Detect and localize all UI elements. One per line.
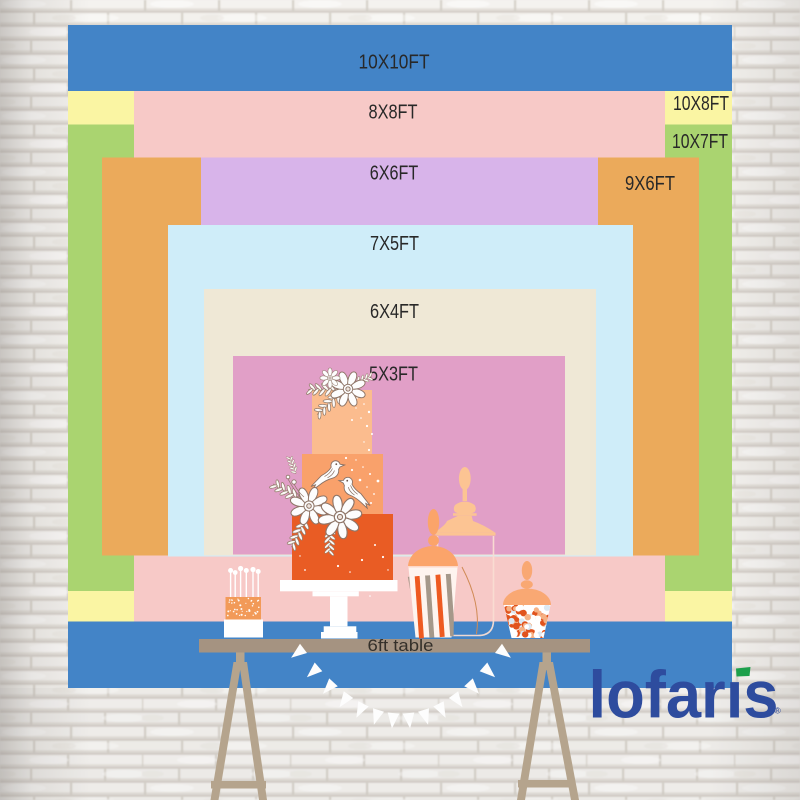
svg-text:7X5FT: 7X5FT	[370, 232, 419, 255]
svg-text:10X10FT: 10X10FT	[359, 51, 430, 74]
svg-text:®: ®	[775, 706, 782, 716]
svg-text:10X8FT: 10X8FT	[673, 92, 729, 115]
svg-text:5X3FT: 5X3FT	[369, 362, 418, 385]
svg-text:9X6FT: 9X6FT	[625, 172, 675, 195]
svg-text:6X4FT: 6X4FT	[370, 300, 419, 323]
svg-text:8X8FT: 8X8FT	[369, 101, 418, 124]
svg-text:6X6FT: 6X6FT	[370, 162, 419, 185]
svg-text:10X7FT: 10X7FT	[672, 130, 728, 153]
svg-text:6ft table: 6ft table	[368, 636, 434, 655]
